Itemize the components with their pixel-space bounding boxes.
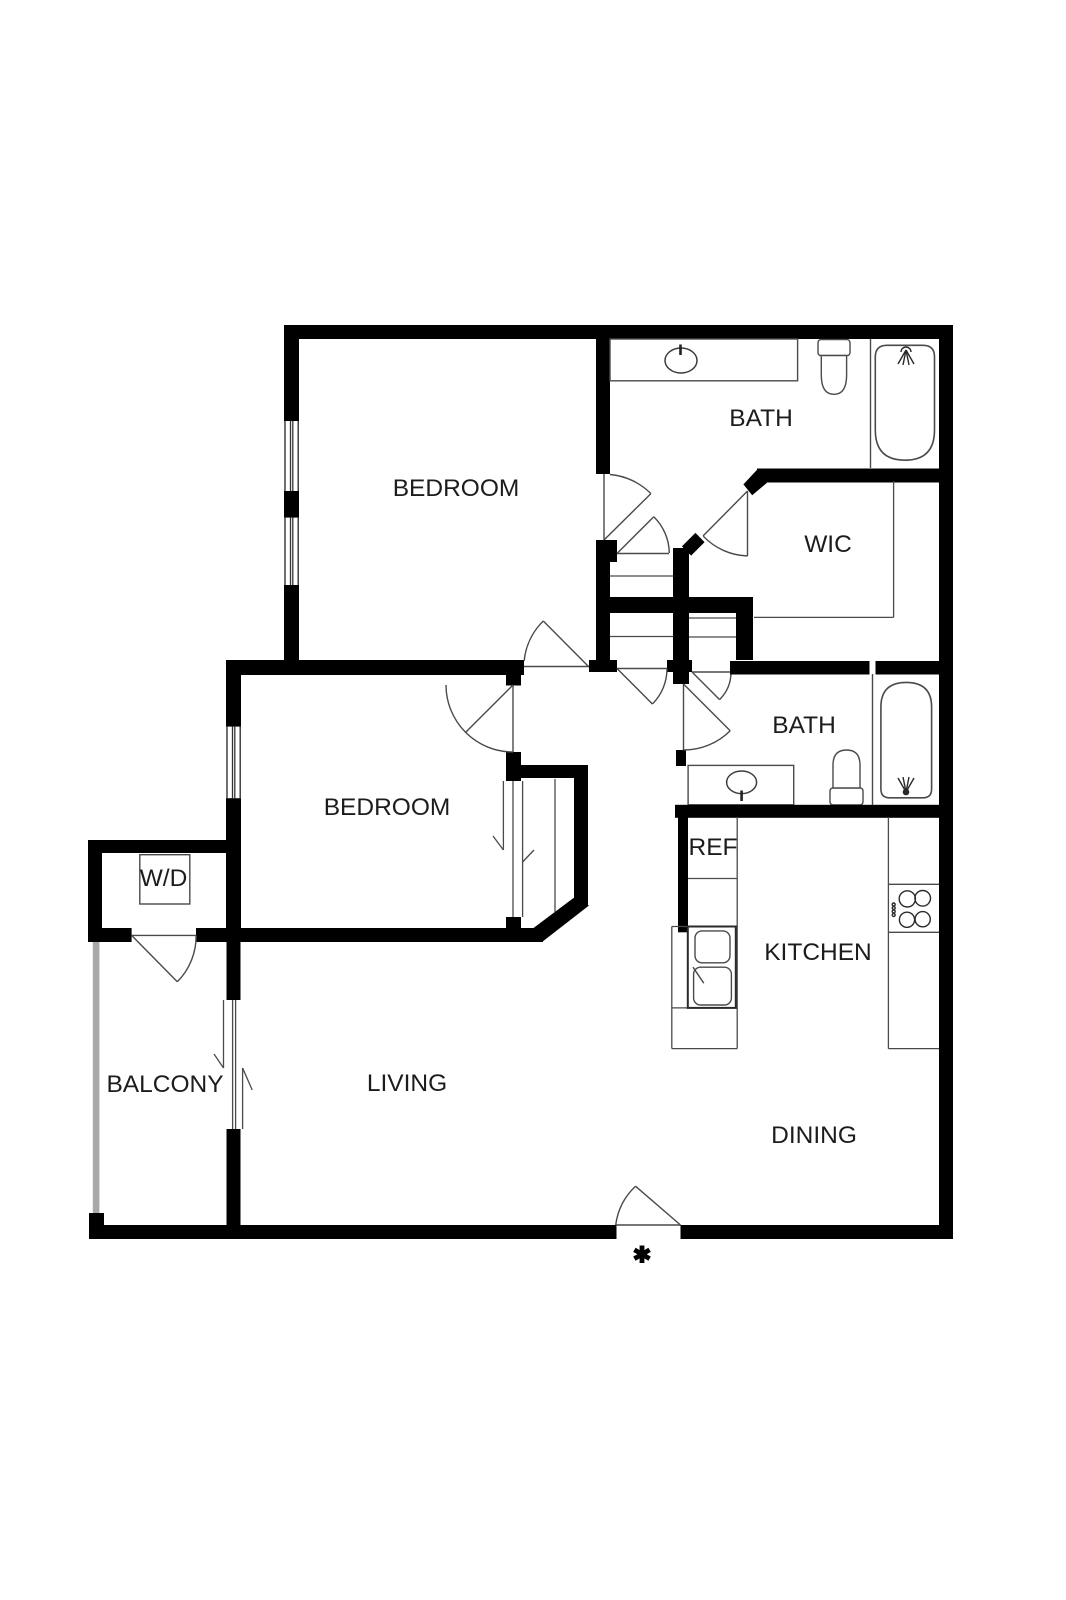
svg-text:KITCHEN: KITCHEN xyxy=(764,939,872,966)
svg-text:WIC: WIC xyxy=(804,531,852,558)
svg-text:DINING: DINING xyxy=(771,1122,857,1149)
svg-text:LIVING: LIVING xyxy=(367,1070,447,1097)
svg-text:REF: REF xyxy=(689,834,738,861)
svg-text:BEDROOM: BEDROOM xyxy=(393,475,520,502)
svg-text:BEDROOM: BEDROOM xyxy=(324,794,451,821)
svg-text:W/D: W/D xyxy=(140,865,188,892)
svg-text:BALCONY: BALCONY xyxy=(106,1071,223,1098)
svg-text:BATH: BATH xyxy=(772,712,836,739)
svg-text:BATH: BATH xyxy=(729,405,793,432)
